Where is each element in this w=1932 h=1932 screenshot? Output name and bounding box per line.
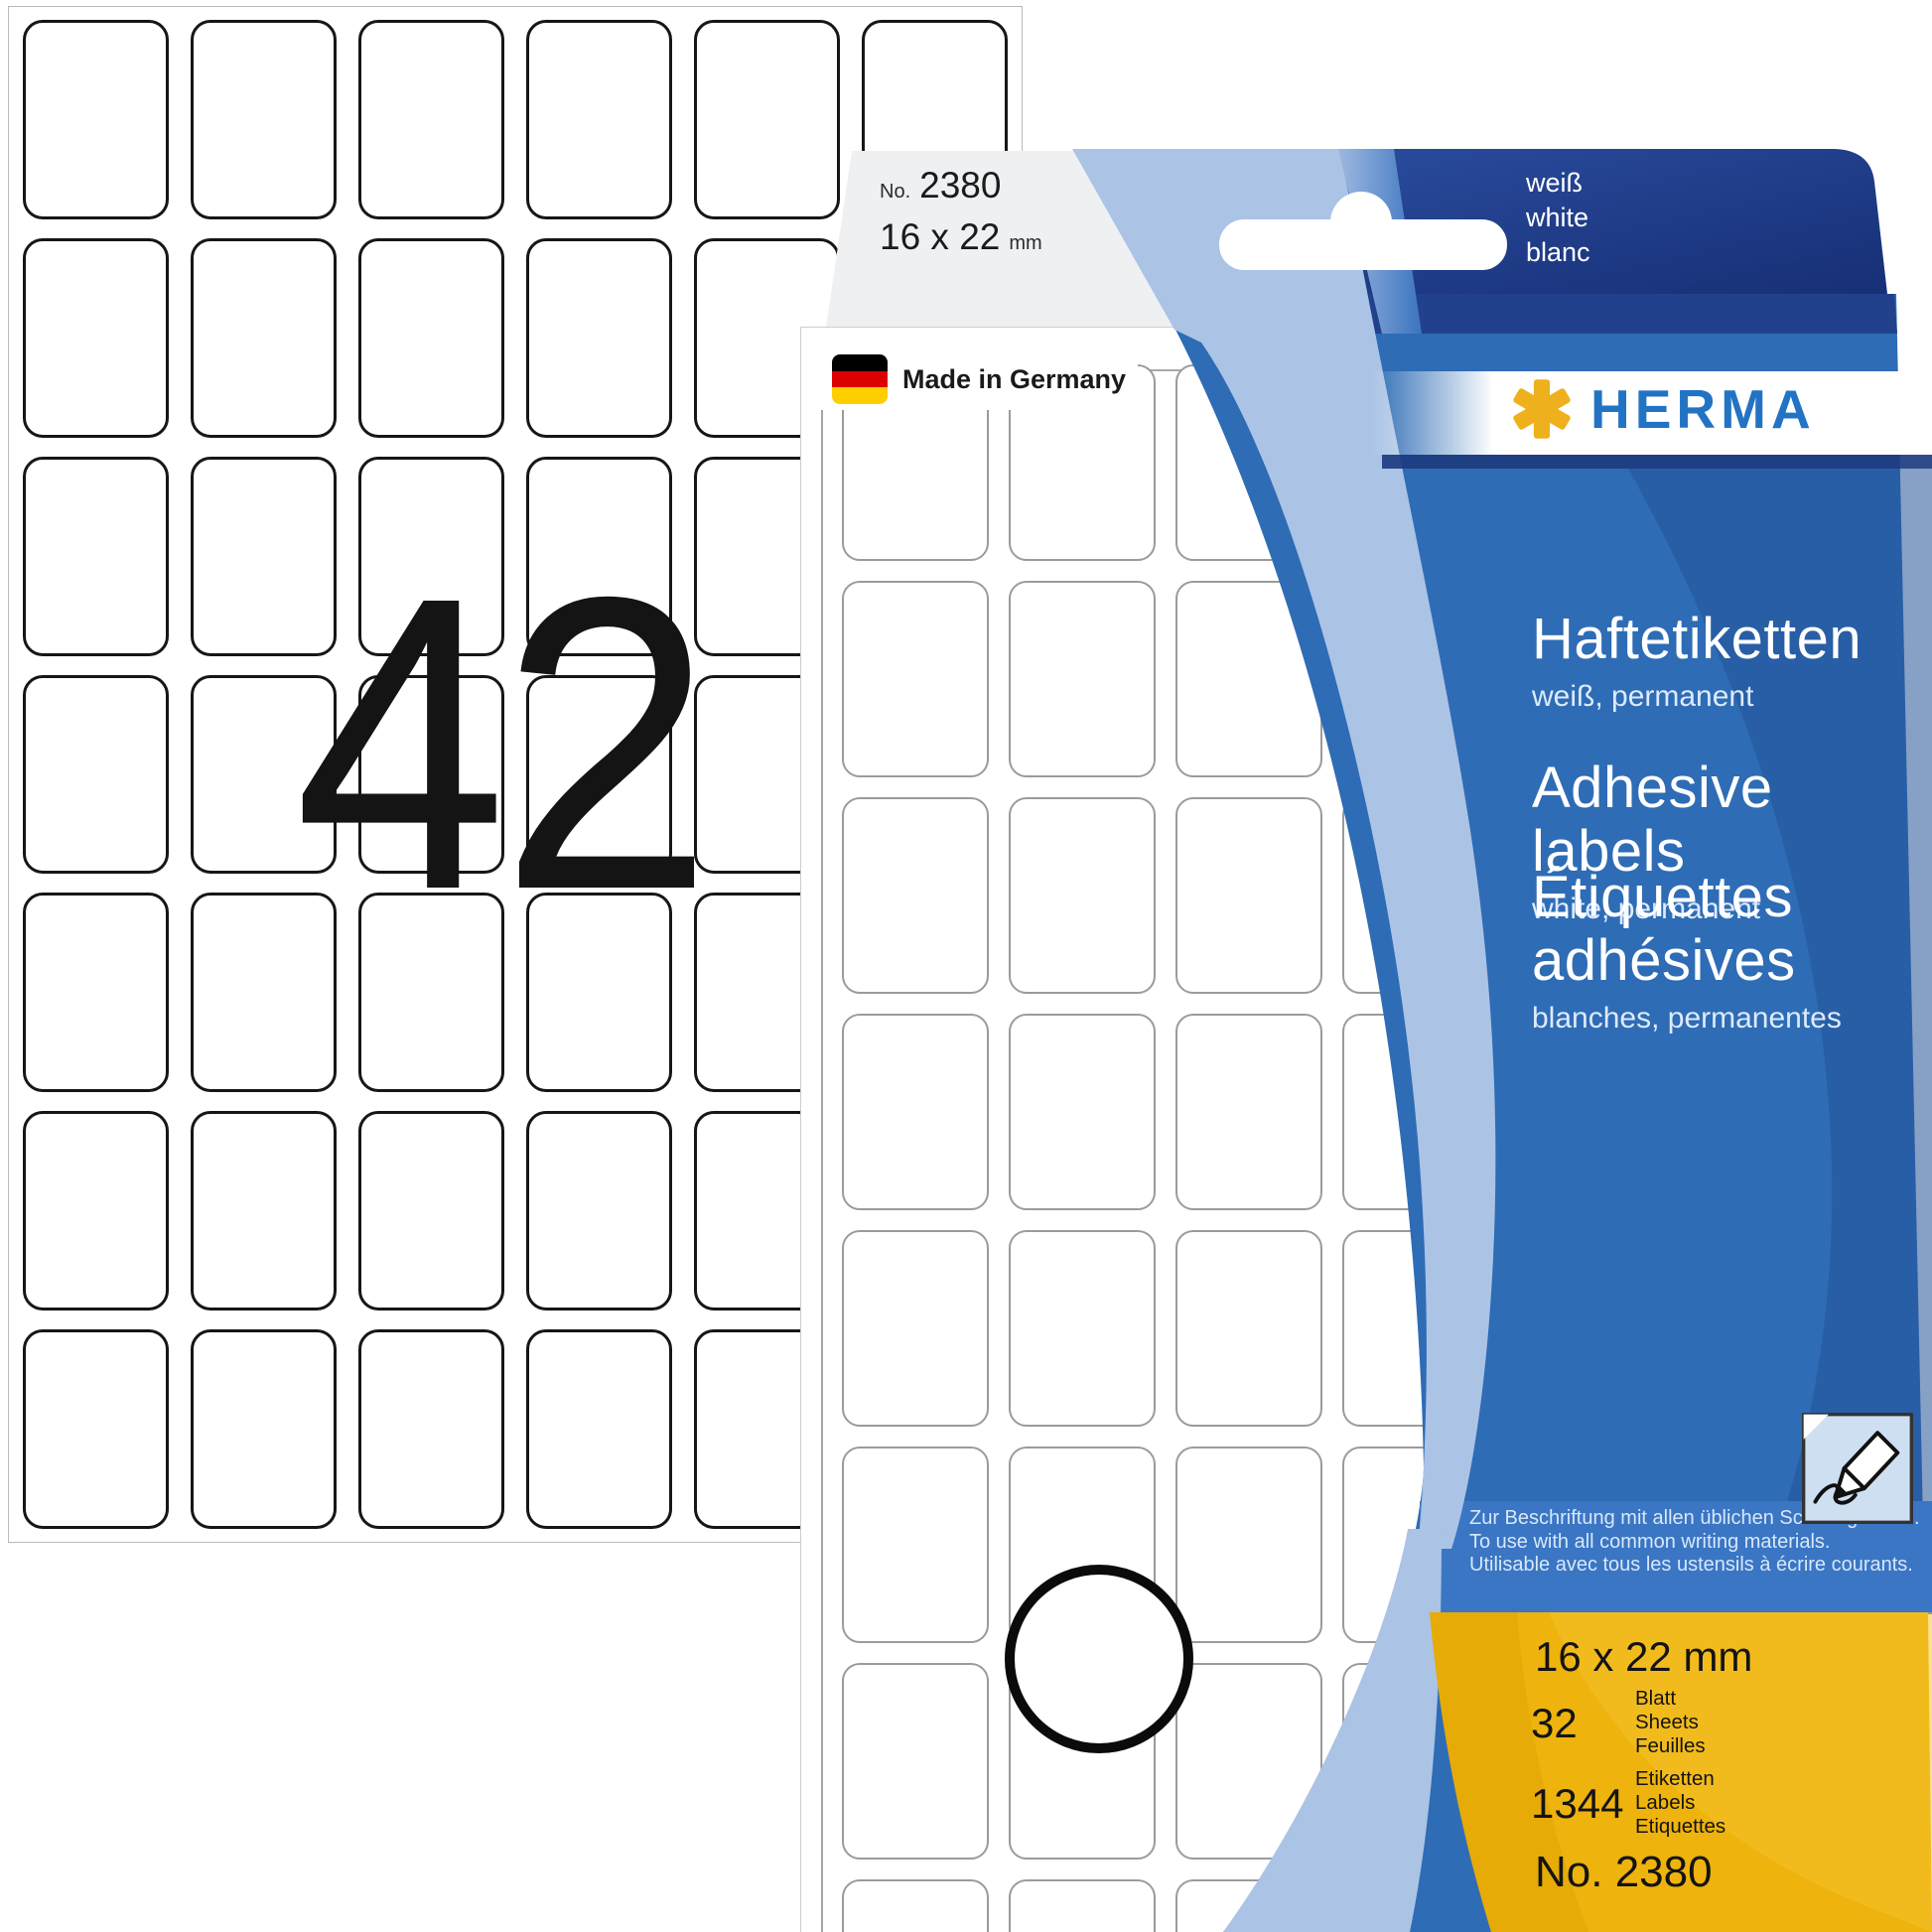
gradient-sliver	[1338, 149, 1422, 334]
pack-label-cell	[1175, 1663, 1322, 1860]
spec-sheets-labels: Blatt Sheets Feuilles	[1635, 1687, 1706, 1758]
die-cut-circle	[1005, 1565, 1193, 1753]
sheet-label-cell	[23, 457, 169, 656]
pack-label-cell	[1342, 1014, 1489, 1210]
sheets-label-en: Sheets	[1635, 1711, 1706, 1734]
color-de: weiß	[1526, 166, 1590, 201]
pack-label-cell	[1175, 1014, 1322, 1210]
pack-label-cell	[842, 1230, 989, 1427]
germany-flag-icon	[832, 354, 888, 404]
labels-label-de: Etiketten	[1635, 1767, 1725, 1791]
asterisk-icon	[1511, 378, 1573, 440]
tab-size-unit: mm	[1009, 232, 1041, 255]
pack-label-cell	[1342, 1230, 1489, 1427]
sheet-label-cell	[191, 20, 337, 219]
sheet-label-cell	[526, 1111, 672, 1311]
usage-line-en: To use with all common writing materials…	[1469, 1531, 1920, 1555]
color-fr: blanc	[1526, 235, 1590, 270]
made-in-germany: Made in Germany	[818, 348, 1138, 410]
herma-logo: HERMA	[1511, 377, 1816, 441]
sheet-label-cell	[23, 1329, 169, 1529]
sheets-label-de: Blatt	[1635, 1687, 1706, 1711]
made-in-text: Made in Germany	[902, 364, 1126, 395]
sheet-label-cell	[23, 893, 169, 1092]
sheet-label-cell	[191, 1111, 337, 1311]
sheet-label-cell	[694, 20, 840, 219]
brand-wordmark: HERMA	[1590, 377, 1816, 441]
pack-label-cell	[1175, 1230, 1322, 1427]
pack-label-cell	[842, 797, 989, 994]
sheet-label-cell	[23, 238, 169, 438]
label-count-overlay: 42	[294, 536, 706, 953]
sheet-label-cell	[191, 1329, 337, 1529]
pack-label-cell	[1175, 581, 1322, 777]
product-image: 42 No. 2380 16 x 22 mm	[0, 0, 1932, 1932]
pack-label-cell	[1009, 1014, 1156, 1210]
pack-label-cell	[842, 1879, 989, 1932]
tab-number: 2380	[919, 165, 1001, 207]
pack-label-cell	[842, 1447, 989, 1643]
sheet-label-cell	[191, 238, 337, 438]
sheet-label-cell	[23, 20, 169, 219]
tab-size: 16 x 22	[880, 216, 1000, 258]
pack-label-cell	[1175, 1879, 1322, 1932]
pack-label-cell	[842, 1663, 989, 1860]
desc-french: Étiquettes adhésives blanches, permanent…	[1532, 866, 1842, 1035]
pack-label-cell	[1342, 364, 1489, 561]
desc-de-sub: weiß, permanent	[1532, 680, 1862, 714]
pack-label-cell	[842, 1014, 989, 1210]
sheet-label-cell	[358, 1329, 504, 1529]
usage-line-fr: Utilisable avec tous les ustensils à écr…	[1469, 1554, 1920, 1578]
pack-label-cell	[1342, 581, 1489, 777]
pack-label-cell	[1175, 364, 1322, 561]
spec-ref-number: No. 2380	[1535, 1848, 1713, 1897]
labels-label-en: Labels	[1635, 1791, 1725, 1815]
sheet-label-cell	[358, 238, 504, 438]
pack-label-cell	[1342, 1447, 1489, 1643]
spec-labels-value: 1344	[1531, 1780, 1623, 1828]
tab-no-label: No.	[880, 181, 910, 204]
pack-label-cell	[1009, 581, 1156, 777]
desc-fr-title2: adhésives	[1532, 929, 1842, 993]
pack-label-cell	[1009, 1230, 1156, 1427]
pack-label-cell	[1009, 797, 1156, 994]
spec-sheets-value: 32	[1531, 1700, 1578, 1747]
desc-de-title: Haftetiketten	[1532, 608, 1862, 671]
sheet-label-cell	[526, 1329, 672, 1529]
sheet-label-cell	[23, 1111, 169, 1311]
sheet-label-cell	[358, 20, 504, 219]
pack-label-cell	[1342, 797, 1489, 994]
pack-label-cell	[1009, 1879, 1156, 1932]
pack-top-tab: No. 2380 16 x 22 mm	[826, 151, 1201, 328]
labels-label-fr: Etiquettes	[1635, 1815, 1725, 1839]
spec-labels-labels: Etiketten Labels Etiquettes	[1635, 1767, 1725, 1839]
sheet-label-cell	[23, 675, 169, 875]
desc-fr-title1: Étiquettes	[1532, 866, 1842, 929]
pencil-icon	[1802, 1413, 1913, 1524]
sheet-label-cell	[526, 238, 672, 438]
pack-label-cell	[1175, 1447, 1322, 1643]
color-names: weiß white blanc	[1526, 166, 1590, 270]
sheet-label-cell	[358, 1111, 504, 1311]
pack-label-cell	[842, 581, 989, 777]
spec-size: 16 x 22 mm	[1535, 1633, 1752, 1681]
pack-label-cell	[1342, 1663, 1489, 1860]
color-en: white	[1526, 201, 1590, 235]
pack-label-cell	[1175, 797, 1322, 994]
pack-label-cell	[1342, 1879, 1489, 1932]
sheets-label-fr: Feuilles	[1635, 1734, 1706, 1758]
desc-fr-sub: blanches, permanentes	[1532, 1002, 1842, 1035]
desc-german: Haftetiketten weiß, permanent	[1532, 608, 1862, 714]
sheet-label-cell	[526, 20, 672, 219]
euro-slot	[1219, 192, 1507, 270]
